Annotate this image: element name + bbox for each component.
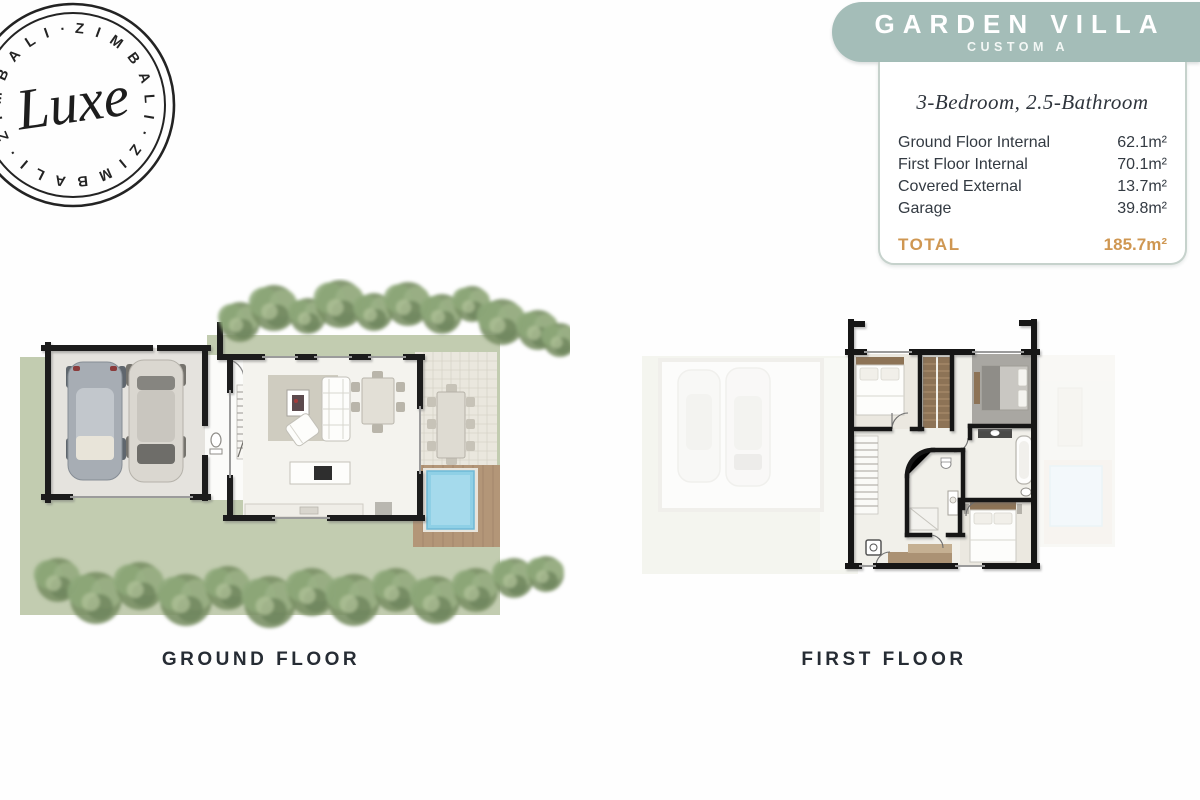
header-band: GARDEN VILLA CUSTOM A [832, 2, 1200, 62]
garage [48, 348, 205, 498]
first-floor-label: FIRST FLOOR [788, 649, 980, 671]
spec-row-label: Garage [898, 198, 951, 220]
ground-floor-label: GROUND FLOOR [150, 649, 372, 671]
bedroom-2-bed [856, 357, 904, 415]
mat [908, 544, 952, 553]
toilet-icon [1021, 488, 1031, 496]
brand-logo: Z I M B A L I · Z I M B A L I · Z I M B … [0, 0, 184, 216]
kitchen-island [290, 462, 350, 484]
spec-card: 3-Bedroom, 2.5-Bathroom Ground Floor Int… [878, 62, 1187, 265]
logo-script: Luxe [11, 62, 133, 142]
staircase [854, 436, 878, 514]
car-icon [66, 362, 126, 480]
spec-row-value: 70.1m² [1117, 154, 1167, 176]
total-label: TOTAL [898, 235, 961, 255]
spec-row: First Floor Internal 70.1m² [898, 154, 1167, 176]
master-bed [974, 366, 1028, 410]
spec-row: Garage 39.8m² [898, 198, 1167, 220]
spec-row: Ground Floor Internal 62.1m² [898, 132, 1167, 154]
pool-deck [413, 465, 500, 547]
ground-floor-plan [0, 278, 570, 650]
total-row: TOTAL 185.7m² [898, 235, 1167, 255]
spec-row-label: Ground Floor Internal [898, 132, 1050, 154]
living-area [243, 357, 420, 519]
tv-unit [287, 390, 309, 416]
sofa [322, 377, 350, 441]
spec-row-label: Covered External [898, 176, 1022, 198]
spec-row-label: First Floor Internal [898, 154, 1028, 176]
bedroom-3-bed [964, 502, 1022, 562]
first-floor-plan [630, 308, 1150, 638]
brochure-page: Z I M B A L I · Z I M B A L I · Z I M B … [0, 0, 1200, 800]
spec-rows: Ground Floor Internal 62.1m² First Floor… [898, 132, 1167, 220]
toilet-icon [211, 433, 221, 447]
total-value: 185.7m² [1104, 235, 1167, 255]
spec-row-value: 13.7m² [1117, 176, 1167, 198]
spec-row-value: 62.1m² [1117, 132, 1167, 154]
spec-row: Covered External 13.7m² [898, 176, 1167, 198]
covered-patio [415, 352, 497, 465]
car-icon [126, 360, 186, 482]
villa-title: GARDEN VILLA [867, 11, 1166, 37]
appliance-icon [866, 540, 881, 555]
spec-headline: 3-Bedroom, 2.5-Bathroom [898, 90, 1167, 115]
spec-row-value: 39.8m² [1117, 198, 1167, 220]
villa-subtitle: CUSTOM A [963, 40, 1069, 54]
